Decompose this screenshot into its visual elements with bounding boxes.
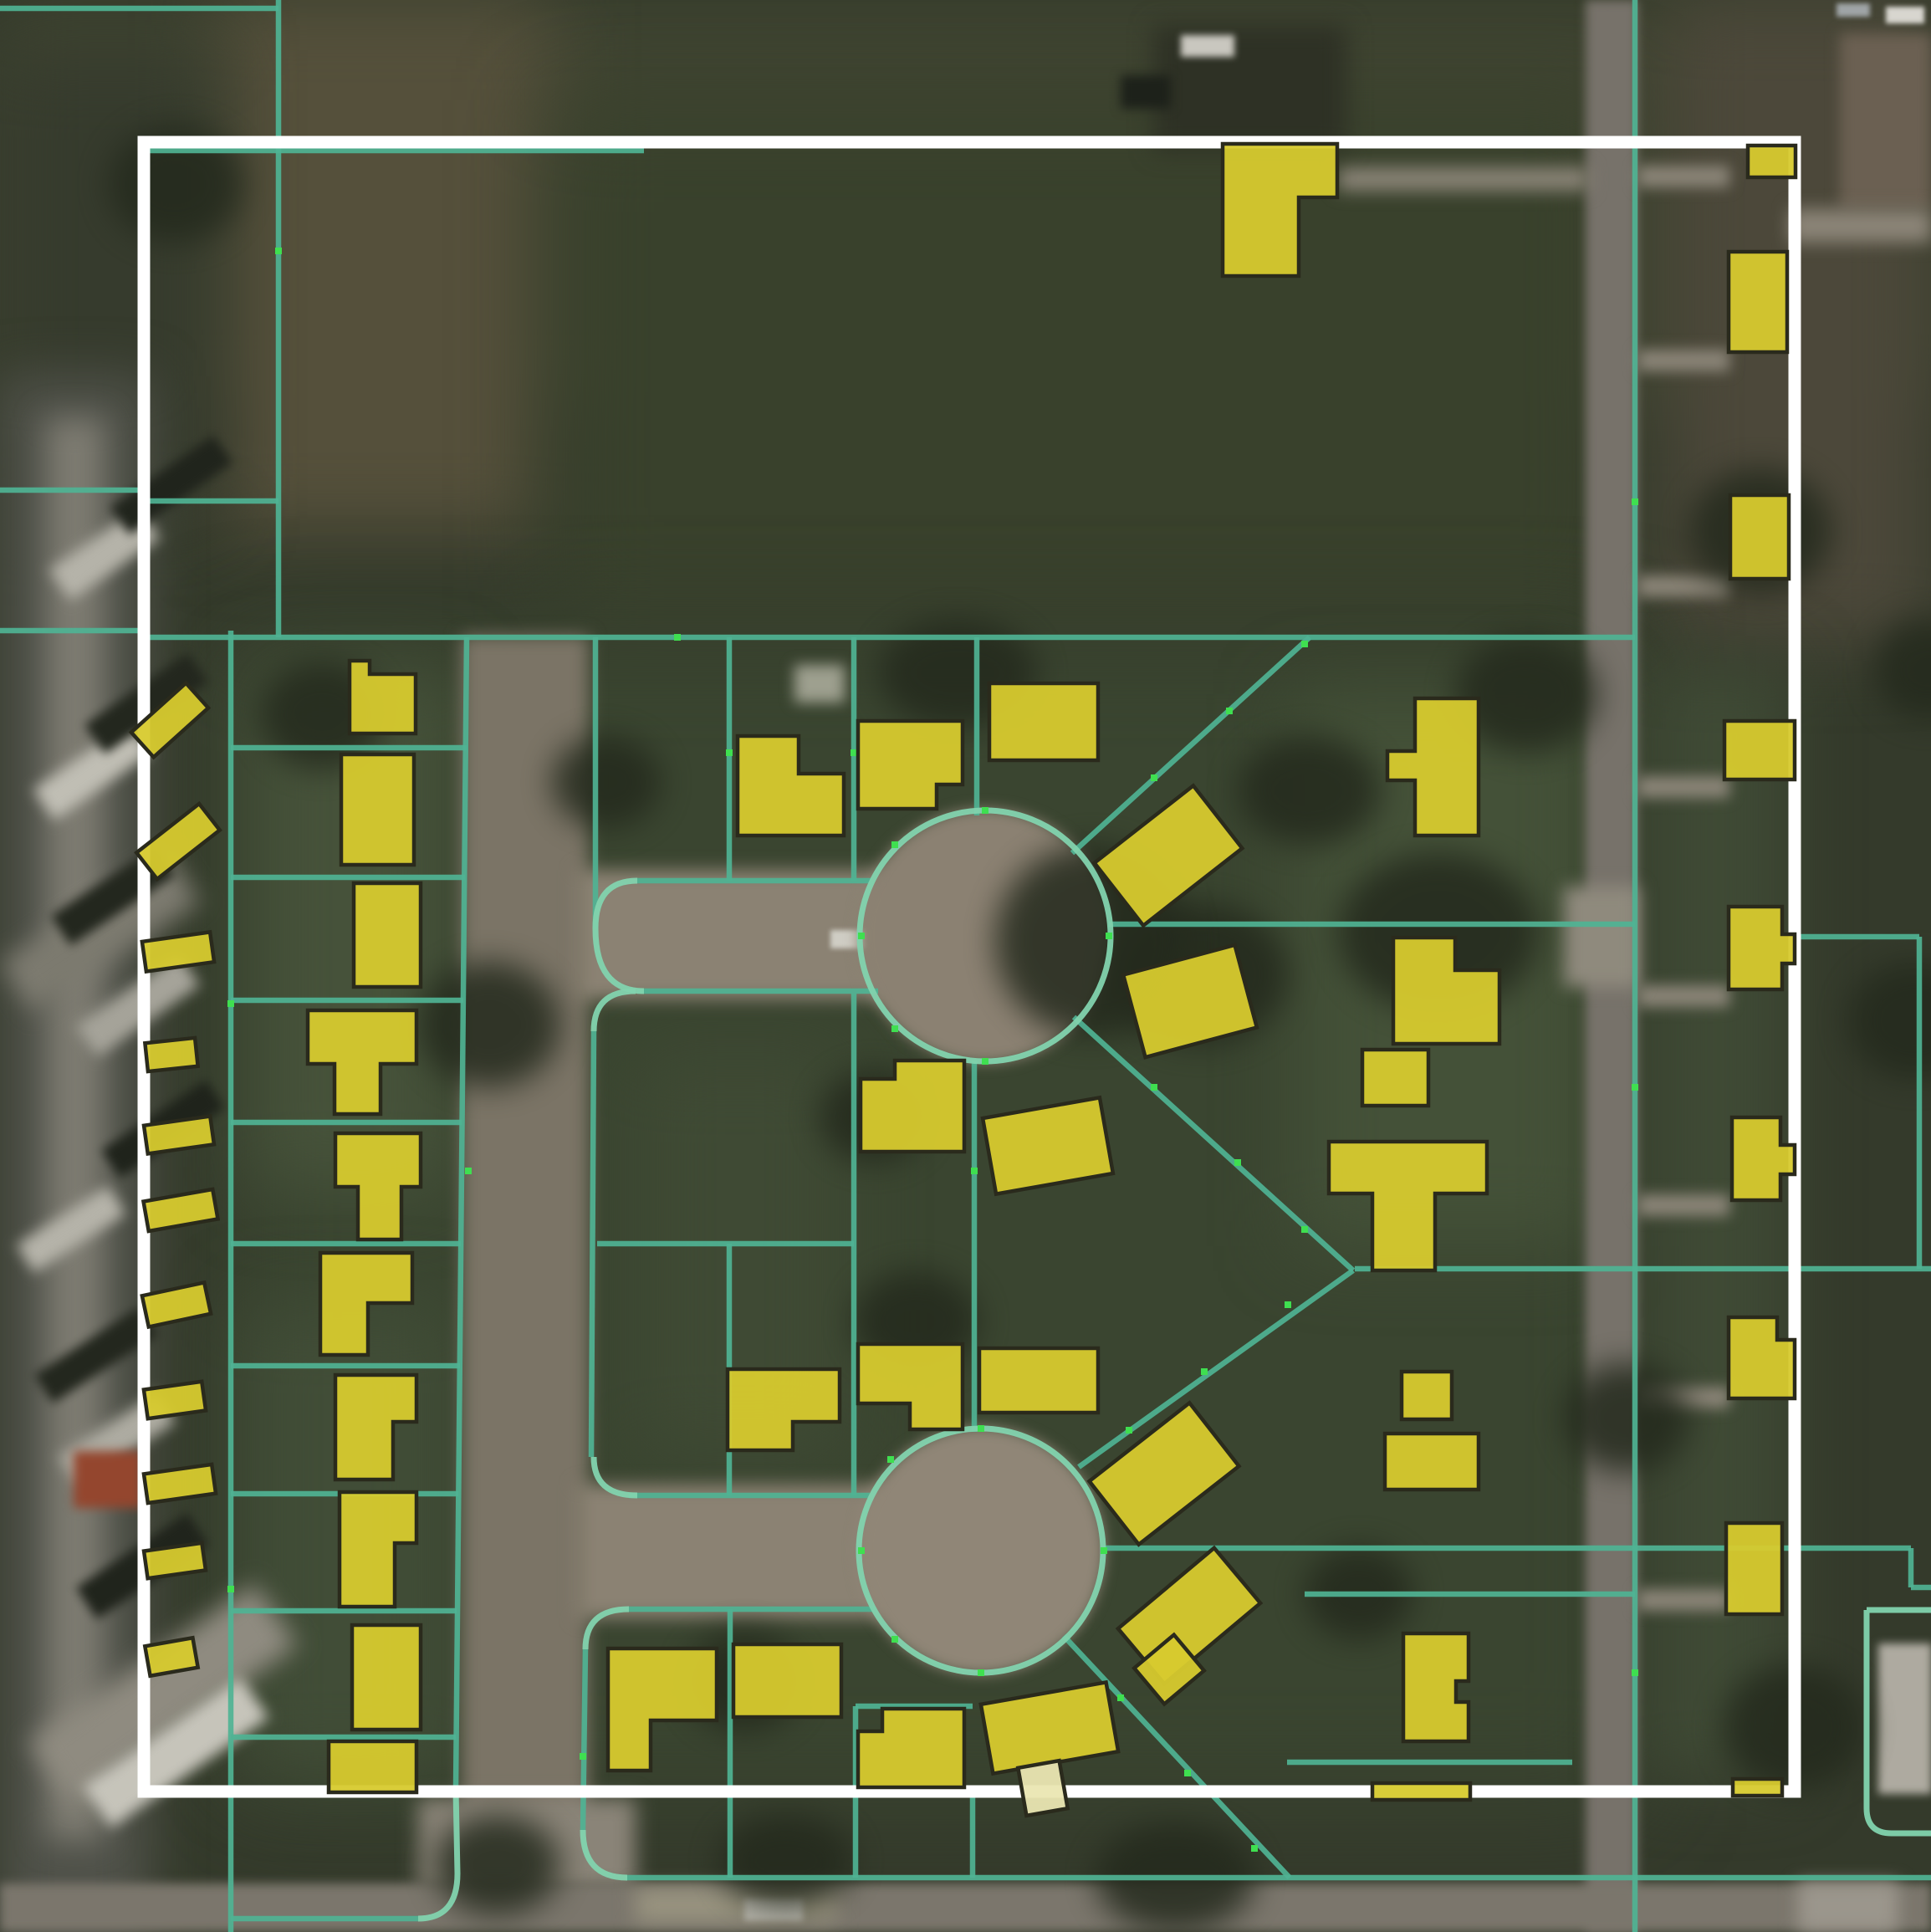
vertex-marker xyxy=(1234,1159,1241,1166)
vertex-marker xyxy=(726,749,733,756)
vertex-marker xyxy=(1285,1301,1291,1308)
building-footprint-house-cds1-e2 xyxy=(1123,945,1257,1057)
vertex-marker xyxy=(275,248,282,254)
building-footprint-trailer-11 xyxy=(145,1638,197,1676)
vertex-marker xyxy=(858,1547,865,1554)
parcel-line xyxy=(1074,1017,1353,1270)
building-footprint-house-cds1-n xyxy=(858,721,963,809)
building-footprint-house-east-1 xyxy=(1748,146,1796,177)
vertex-marker xyxy=(1632,1669,1638,1676)
parcel-line-curve xyxy=(418,1790,457,1919)
building-footprint-house-cds2-e1 xyxy=(1090,1403,1239,1544)
parcel-line-curve xyxy=(595,928,644,991)
vertex-marker xyxy=(858,933,865,939)
vertex-marker xyxy=(1251,1845,1258,1852)
building-footprint-house-east-2 xyxy=(1729,252,1787,352)
vertex-marker xyxy=(227,1000,234,1007)
vertex-marker xyxy=(1184,1770,1191,1776)
building-footprint-house-east-4 xyxy=(1724,721,1795,779)
parcel-line-curve xyxy=(583,1830,627,1878)
building-footprint-house-col1-4 xyxy=(308,1010,416,1114)
building-footprint-house-east-8 xyxy=(1726,1523,1782,1614)
building-footprint-house-col1-8 xyxy=(340,1492,416,1607)
building-footprint-house-cds1-se xyxy=(983,1097,1113,1193)
vertex-marker xyxy=(674,634,681,641)
building-footprint-house-east-6 xyxy=(1732,1117,1795,1200)
vertex-marker xyxy=(1117,1694,1124,1701)
vertex-marker xyxy=(1151,774,1157,781)
building-footprint-house-cds2-n xyxy=(858,1344,963,1429)
parcel-line-curve xyxy=(594,991,636,1031)
vertex-marker xyxy=(891,1025,898,1032)
building-footprint-house-cds1-s xyxy=(861,1061,964,1152)
building-footprint-house-col1-9 xyxy=(352,1625,421,1730)
building-footprint-shed-rcol xyxy=(1362,1050,1428,1106)
building-footprint-trailer-6 xyxy=(144,1189,218,1231)
building-footprint-trailer-3 xyxy=(142,932,214,971)
building-footprint-house-rcol-1 xyxy=(1387,698,1479,836)
building-footprint-house-cds2-se-bar xyxy=(981,1682,1118,1773)
vertex-marker xyxy=(1151,1084,1157,1091)
building-footprint-house-east-3 xyxy=(1730,495,1789,579)
building-footprint-house-east-7 xyxy=(1729,1317,1795,1398)
building-footprint-house-cds1-e1 xyxy=(1095,785,1243,925)
building-footprint-building-top-L xyxy=(1223,144,1337,276)
vertex-marker xyxy=(580,1753,586,1760)
vertex-marker xyxy=(1301,1226,1308,1233)
building-footprint-trailer-4 xyxy=(145,1038,197,1071)
parcel-line-curve xyxy=(585,1609,629,1649)
vertex-marker xyxy=(465,1168,472,1174)
vertex-marker xyxy=(1126,1427,1132,1434)
building-footprint-house-cds2-ne xyxy=(979,1348,1098,1413)
building-footprint-house-rcol-3 xyxy=(1329,1142,1487,1270)
building-footprint-trailer-9 xyxy=(144,1464,216,1503)
vertex-marker xyxy=(982,1058,988,1065)
vertex-marker xyxy=(1101,1547,1107,1554)
building-footprint-house-col1-3 xyxy=(354,883,421,987)
building-footprint-trailer-5 xyxy=(144,1117,214,1154)
building-footprint-house-rcol-5 xyxy=(1403,1633,1469,1741)
building-footprint-house-rcol-2 xyxy=(1393,938,1499,1044)
building-footprint-house-cds2-se-leg xyxy=(1018,1761,1067,1816)
building-footprint-building-strip-border xyxy=(1372,1783,1470,1800)
building-footprint-trailer-10 xyxy=(144,1543,206,1578)
vertex-marker xyxy=(891,1636,898,1643)
vertex-marker xyxy=(891,841,898,848)
parcel-line xyxy=(591,1031,594,1457)
building-footprint-house-col1-1 xyxy=(350,661,416,733)
vertex-marker xyxy=(1301,641,1308,647)
building-footprint-house-cds2-s1 xyxy=(733,1644,841,1717)
building-footprint-house-cds2-s2 xyxy=(858,1709,964,1787)
building-footprint-house-col1-5 xyxy=(335,1133,421,1239)
building-footprint-trailer-7 xyxy=(142,1283,211,1327)
vertex-marker xyxy=(1632,498,1638,505)
parcel-line xyxy=(456,637,467,1790)
building-footprint-house-cds1-nw xyxy=(738,736,844,836)
building-footprint-house-col1-2 xyxy=(341,754,414,865)
building-footprint-house-cds2-nw xyxy=(728,1369,840,1450)
vertex-marker xyxy=(1632,1084,1638,1091)
parcel-line-curve xyxy=(1867,1610,1931,1833)
vertex-marker xyxy=(971,1168,978,1174)
vertex-marker xyxy=(978,1425,984,1432)
vertex-marker xyxy=(1106,933,1112,939)
parcel-line xyxy=(583,1649,585,1830)
building-footprint-trailer-8 xyxy=(144,1382,206,1418)
vertex-marker xyxy=(982,807,988,814)
vertex-marker xyxy=(1226,708,1233,714)
building-footprint-house-east-5 xyxy=(1729,907,1795,989)
parcel-line-curve xyxy=(594,1457,637,1495)
parcel-line-curve xyxy=(595,881,637,928)
vertex-marker xyxy=(1201,1368,1208,1375)
building-footprint-house-col1-6 xyxy=(320,1253,412,1355)
building-footprint-house-cds2-sw xyxy=(608,1648,717,1771)
vertex-marker xyxy=(227,1586,234,1592)
building-footprint-house-cds1-ne xyxy=(989,683,1098,760)
aerial-map-viewport[interactable] xyxy=(0,0,1931,1932)
building-footprint-shed-rcol-2 xyxy=(1402,1372,1452,1419)
building-footprint-house-col1-10 xyxy=(329,1741,416,1792)
vertex-marker xyxy=(887,1456,894,1463)
building-footprint-house-rcol-4 xyxy=(1385,1434,1479,1490)
building-footprint-house-col1-7 xyxy=(335,1375,416,1480)
building-footprint-house-east-9 xyxy=(1733,1779,1782,1796)
vertex-marker xyxy=(978,1669,984,1676)
annotation-overlay xyxy=(0,0,1931,1932)
